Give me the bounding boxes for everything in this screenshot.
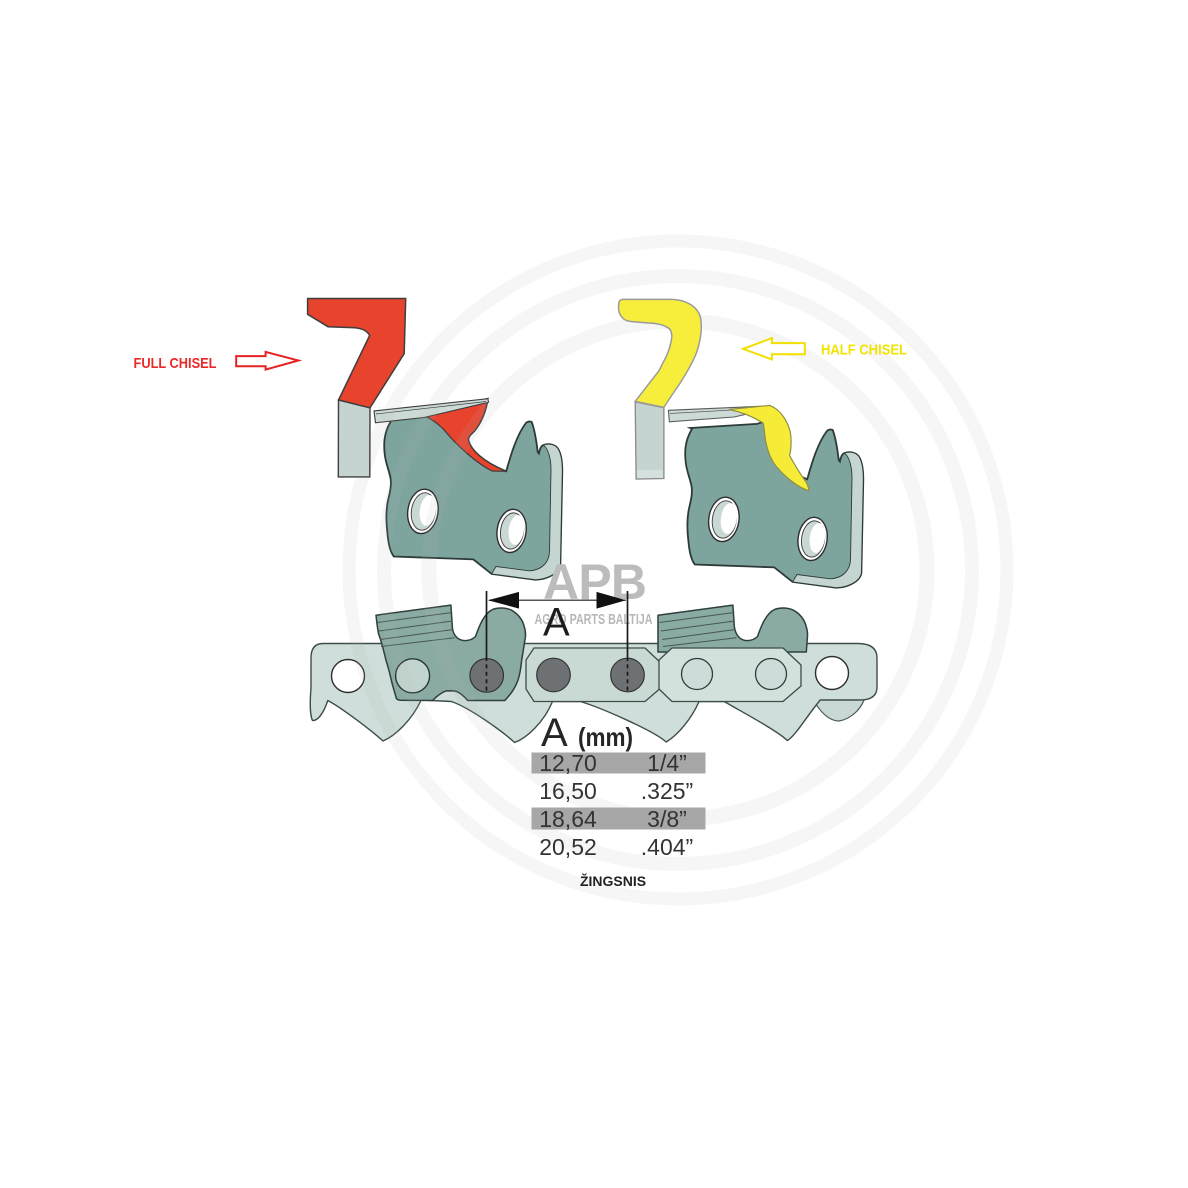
svg-text:HALF CHISEL: HALF CHISEL <box>821 342 907 359</box>
svg-text:20,52: 20,52 <box>539 834 597 860</box>
svg-text:.325”: .325” <box>641 778 693 804</box>
svg-text:1/4”: 1/4” <box>647 750 687 776</box>
svg-text:FULL CHISEL: FULL CHISEL <box>134 355 217 372</box>
svg-text:A: A <box>541 711 568 755</box>
svg-text:3/8”: 3/8” <box>647 806 687 832</box>
svg-text:(mm): (mm) <box>578 722 633 752</box>
svg-text:.404”: .404” <box>641 834 693 860</box>
svg-text:16,50: 16,50 <box>539 778 597 804</box>
svg-text:ŽINGSNIS: ŽINGSNIS <box>580 872 646 889</box>
svg-text:18,64: 18,64 <box>539 806 597 832</box>
svg-text:A: A <box>543 601 570 645</box>
svg-text:12,70: 12,70 <box>539 750 597 776</box>
